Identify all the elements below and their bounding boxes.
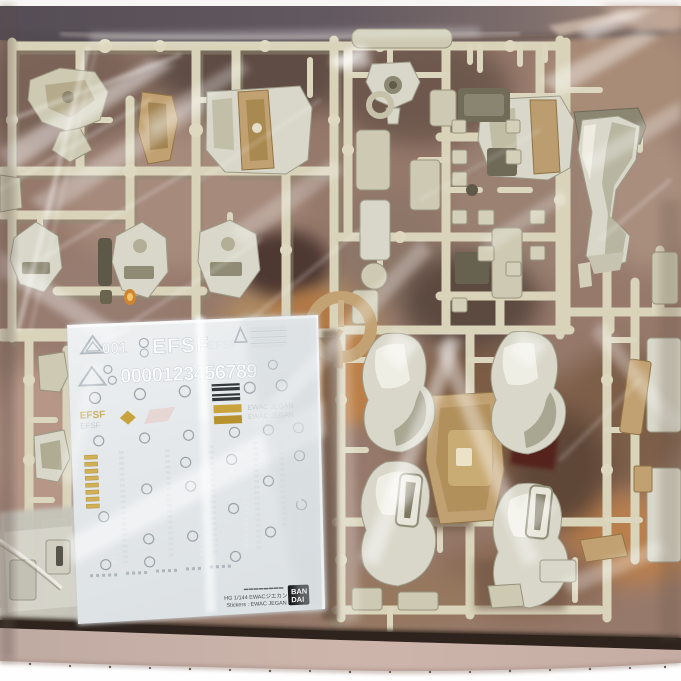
svg-text:EFSF: EFSF <box>207 337 238 352</box>
svg-text:001: 001 <box>102 340 128 358</box>
